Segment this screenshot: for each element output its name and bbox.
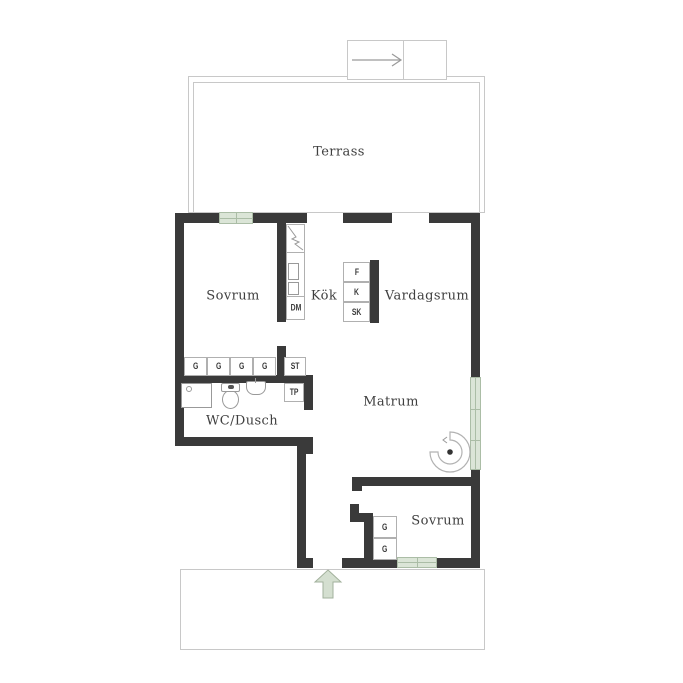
window-mullion [475,378,476,469]
toilet-bowl-icon [222,390,239,409]
wardrobe-box: G [230,357,253,376]
wardrobe-box: G [207,357,230,376]
room-label-living-room: Vardagsrum [385,289,469,304]
wall-segment [471,213,480,378]
window-bottom [397,557,437,568]
wall-segment [175,375,313,383]
wardrobe-label: G [382,522,387,533]
appliance-box-freezer: F [343,262,370,282]
room-label-dining-room: Matrum [363,395,419,410]
sink-icon [246,381,266,395]
toilet-flush-icon [228,385,234,389]
wall-segment [277,223,286,322]
window-mullion [398,562,436,563]
wardrobe-box: G [373,538,397,560]
shower-drain-icon [186,386,192,392]
window-top [219,212,253,224]
drying-cabinet-label: TP [290,387,299,398]
wall-segment [304,383,313,410]
wardrobe-label: G [239,361,244,372]
room-label-kitchen: Kök [311,289,337,304]
cleaning-cabinet-label: ST [291,361,300,372]
wardrobe-box: G [184,357,207,376]
wardrobe-box: G [253,357,276,376]
wall-segment [343,213,392,223]
wardrobe-label: G [382,544,387,555]
room-label-bathroom: WC/Dusch [206,414,278,429]
cleaning-cabinet-box: ST [284,357,306,376]
drying-cabinet-box: TP [284,383,304,402]
entrance-arrow-icon [314,569,342,599]
appliance-box-cabinet: SK [343,302,370,322]
room-label-bedroom-top: Sovrum [206,289,259,304]
wall-segment [352,477,362,491]
appliance-box-fridge: K [343,282,370,302]
kitchen-sink-basin [288,263,299,280]
wall-segment [297,558,313,568]
room-label-bedroom-bottom: Sovrum [411,514,464,529]
wall-segment [437,558,480,568]
counter-divider [287,296,304,297]
window-mullion [220,218,252,219]
tall-cabinet-zigzag-icon [286,224,305,252]
wardrobe-label: G [193,361,198,372]
wall-segment [175,437,313,446]
wall-segment [175,213,184,446]
wardrobe-label: G [262,361,267,372]
kitchen-sink-basin [288,282,299,295]
door-swing-icon [426,428,474,476]
wall-segment [352,477,480,486]
freezer-label: F [354,267,358,278]
window-mullion [471,409,480,410]
counter-divider [287,252,304,253]
floor-plan: DM F K SK G G G G ST TP G G [0,0,683,683]
wall-segment [364,513,373,559]
room-label-terrace: Terrass [313,145,365,160]
cabinet-label: SK [352,307,362,318]
wall-segment [253,213,307,223]
wardrobe-box: G [373,516,397,538]
wall-segment [297,446,306,559]
dishwasher-label: DM [291,303,302,314]
wall-segment [370,260,379,323]
stairs-direction-arrow-icon [349,46,405,74]
fridge-label: K [354,287,359,298]
wardrobe-label: G [216,361,221,372]
sink-tap-icon [255,378,256,383]
